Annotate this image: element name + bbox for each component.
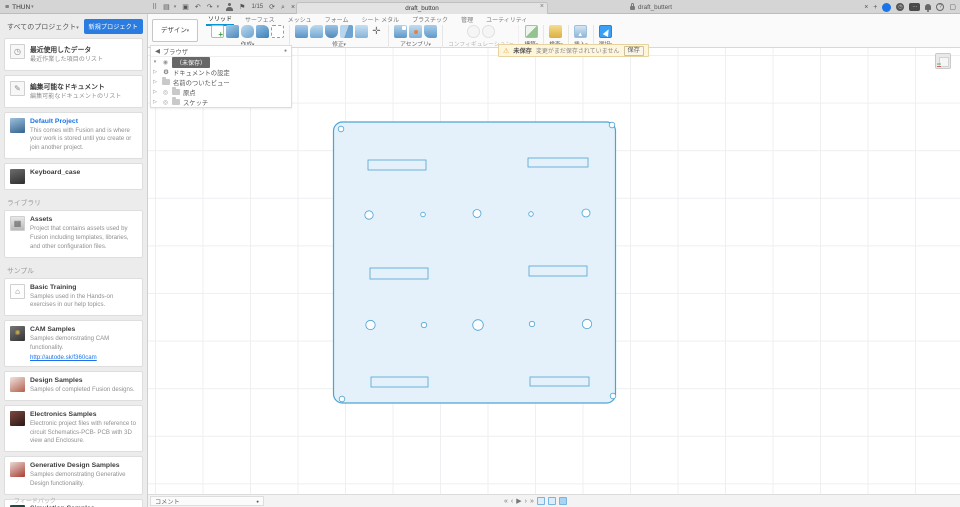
- mount-hole[interactable]: [582, 319, 591, 328]
- project-title: Generative Design Samples: [30, 462, 137, 469]
- timeline-feature-sketch-chip-icon[interactable]: [537, 497, 545, 505]
- sketch-profile[interactable]: [334, 122, 616, 403]
- status-dot-icon: ●: [256, 499, 259, 504]
- browser-node-3[interactable]: ▷◎スケッチ: [151, 97, 291, 107]
- browser-palette: ◀ ブラウザ ● ▾ ◉ （未保存） ▷⚙ドキュメントの設定▷名前のついたビュー…: [150, 45, 292, 108]
- project-thumbnail: [10, 118, 25, 133]
- expand-arrow-icon[interactable]: ▷: [151, 99, 159, 105]
- mount-hole[interactable]: [365, 211, 373, 219]
- mount-hole[interactable]: [473, 210, 481, 218]
- refresh-icon[interactable]: ⟳: [269, 4, 275, 11]
- chevron-down-icon: ▾: [76, 25, 79, 31]
- project-description: Electronic project files with reference …: [30, 420, 137, 446]
- project-card[interactable]: Default ProjectThis comes with Fusion an…: [4, 112, 143, 159]
- timeline-feature-sketch-chip-hot-icon[interactable]: [559, 497, 567, 505]
- skip-start-icon[interactable]: «: [504, 498, 508, 505]
- project-card[interactable]: 最近使用したデータ最近作業した項目のリスト: [4, 38, 143, 71]
- lock-icon: [630, 6, 635, 10]
- project-description: 最近作業した項目のリスト: [30, 56, 103, 65]
- modeling-canvas[interactable]: [148, 48, 960, 494]
- project-description: This comes with Fusion and is where your…: [30, 127, 137, 153]
- form-icon[interactable]: [241, 25, 254, 38]
- project-description: Samples used in the Hands-on exercises i…: [30, 293, 137, 311]
- sketch-plate[interactable]: [148, 48, 960, 494]
- mount-hole[interactable]: [529, 321, 534, 326]
- project-card[interactable]: Electronics SamplesElectronic project fi…: [4, 405, 143, 452]
- new-project-button[interactable]: 新規プロジェクト: [84, 19, 144, 34]
- unsaved-badge: 未保存: [513, 46, 532, 55]
- document-tab[interactable]: draft_button ×: [296, 2, 548, 14]
- view-cube[interactable]: [935, 53, 951, 69]
- ribbon-tab-3[interactable]: フォーム: [323, 14, 351, 25]
- extrude-icon[interactable]: [226, 25, 239, 38]
- project-title: Basic Training: [30, 284, 137, 291]
- window-icon[interactable]: ▢: [949, 4, 956, 11]
- expand-arrow-icon[interactable]: ▷: [151, 89, 159, 95]
- expand-arrow-icon[interactable]: ▾: [151, 59, 159, 65]
- skip-end-icon[interactable]: »: [530, 498, 534, 505]
- mount-hole[interactable]: [366, 320, 375, 329]
- construct-plane-icon[interactable]: [525, 25, 538, 38]
- recent-icon: [10, 44, 25, 59]
- warning-icon: ⚠: [503, 47, 509, 55]
- project-title: Electronics Samples: [30, 411, 137, 418]
- mount-hole[interactable]: [582, 209, 590, 217]
- folder-icon: [172, 99, 180, 105]
- help-icon[interactable]: ?: [936, 3, 944, 11]
- revolve-icon[interactable]: [256, 25, 269, 38]
- project-title: 最近使用したデータ: [30, 44, 103, 54]
- projects-filter-dropdown[interactable]: すべてのプロジェクト ▾: [7, 22, 79, 32]
- folder-icon: [162, 79, 170, 85]
- project-description: Samples demonstrating Generative Design …: [30, 471, 137, 489]
- ribbon-tab-1[interactable]: サーフェス: [243, 14, 277, 25]
- application-bar: ≡ THUN ▾ ⠿▤▾▣↶↷▾⚑1/15⟳⌕× draft_button × …: [0, 0, 960, 14]
- project-card[interactable]: Design SamplesSamples of completed Fusio…: [4, 371, 143, 401]
- project-title: CAM Samples: [30, 326, 137, 333]
- chevron-down-icon: ▾: [31, 4, 34, 10]
- hamburger-icon[interactable]: ≡: [5, 4, 9, 11]
- unsaved-warning-bar: ⚠ 未保存 変更がまだ保存されていません 保存: [498, 44, 649, 57]
- close-icon[interactable]: ×: [291, 4, 295, 11]
- section-label: ライブラリ: [7, 197, 147, 207]
- grid-icon[interactable]: ⠿: [152, 4, 157, 11]
- corner-hole[interactable]: [338, 126, 344, 132]
- ribbon-tab-5[interactable]: プラスチック: [410, 14, 450, 25]
- chevron-down-icon: ▾: [174, 4, 177, 10]
- bell-icon[interactable]: [925, 4, 931, 10]
- collapse-icon[interactable]: ◀: [155, 48, 160, 55]
- file-icon[interactable]: ▤: [163, 4, 170, 11]
- warning-message: 変更がまだ保存されていません: [536, 46, 620, 55]
- section-label: サンプル: [7, 265, 147, 275]
- window-title: draft_buttert: [630, 0, 672, 14]
- project-card[interactable]: Keyboard_case: [4, 163, 143, 190]
- edit-icon: [10, 81, 25, 96]
- project-thumbnail: [10, 462, 25, 477]
- browser-node-2[interactable]: ▷◎原点: [151, 87, 291, 97]
- flag-icon[interactable]: ⚑: [239, 4, 245, 11]
- comments-label: コメント: [155, 497, 180, 506]
- apps-icon[interactable]: ⋯: [909, 3, 920, 11]
- team-name[interactable]: THUN: [12, 4, 30, 11]
- user-icon[interactable]: [225, 3, 233, 11]
- data-panel: すべてのプロジェクト ▾ 新規プロジェクト 最近使用したデータ最近作業した項目の…: [0, 14, 148, 507]
- project-thumbnail: [10, 169, 25, 184]
- workspace-switcher[interactable]: デザイン ▾: [152, 19, 198, 42]
- browser-title: ブラウザ: [163, 47, 188, 56]
- gear-icon: ⚙: [162, 68, 170, 76]
- project-link[interactable]: http://autode.sk/f360cam: [30, 354, 137, 361]
- project-description: Samples demonstrating CAM functionality.: [30, 335, 137, 353]
- select-cursor-icon[interactable]: [599, 25, 612, 38]
- toolbar-group-2: アセンブリ ▾: [389, 25, 443, 48]
- mount-hole[interactable]: [421, 212, 426, 217]
- browser-node-label: 原点: [183, 88, 196, 97]
- joint-icon[interactable]: [409, 25, 422, 38]
- root-component-label[interactable]: （未保存）: [172, 57, 210, 68]
- shell-icon[interactable]: [325, 25, 338, 38]
- insert-image-icon[interactable]: [574, 25, 587, 38]
- chevron-down-icon: ▾: [217, 4, 220, 10]
- close-tab-icon[interactable]: ×: [540, 3, 544, 10]
- ribbon-toolbar: デザイン ▾ ソリッドサーフェスメッシュフォームシート メタルプラスチック管理ユ…: [148, 14, 960, 48]
- search-icon[interactable]: ⌕: [281, 4, 285, 11]
- eye-icon[interactable]: ◉: [162, 59, 169, 66]
- step-back-icon[interactable]: ‹: [511, 498, 513, 505]
- ribbon-tab-4[interactable]: シート メタル: [360, 14, 402, 25]
- project-card[interactable]: Generative Design SamplesSamples demonst…: [4, 456, 143, 495]
- project-card[interactable]: AssetsProject that contains assets used …: [4, 210, 143, 257]
- corner-hole[interactable]: [609, 122, 615, 128]
- project-title: 編集可能なドキュメント: [30, 81, 121, 91]
- project-thumbnail: [10, 326, 25, 341]
- save-icon[interactable]: ▣: [182, 4, 189, 11]
- corner-hole[interactable]: [610, 393, 616, 399]
- close-icon[interactable]: ×: [864, 4, 868, 11]
- project-card[interactable]: CAM SamplesSamples demonstrating CAM fun…: [4, 320, 143, 367]
- project-description: Project that contains assets used by Fus…: [30, 225, 137, 251]
- comments-palette[interactable]: コメント ●: [150, 496, 264, 506]
- toolbar-group-1: 修正 ▾: [290, 25, 389, 48]
- project-description: Samples of completed Fusion designs.: [30, 386, 135, 395]
- options-dot-icon[interactable]: ●: [284, 48, 287, 54]
- sketch-create-icon[interactable]: [211, 25, 224, 38]
- project-title: Design Samples: [30, 377, 135, 384]
- ribbon-tab-6[interactable]: 管理: [459, 14, 475, 25]
- play-icon[interactable]: ▶: [516, 498, 521, 505]
- mount-hole[interactable]: [473, 320, 484, 331]
- toolbar-group-label[interactable]: 修正 ▾: [295, 39, 383, 48]
- window-title-text: draft_buttert: [638, 4, 672, 11]
- browser-node-label: スケッチ: [183, 98, 208, 107]
- browser-node-label: 名前のついたビュー: [173, 78, 230, 87]
- user-avatar[interactable]: [882, 3, 891, 12]
- toolbar-group-label[interactable]: アセンブリ ▾: [394, 39, 437, 48]
- add-icon[interactable]: +: [873, 4, 877, 11]
- expand-arrow-icon[interactable]: ▷: [151, 79, 159, 85]
- construction-icon[interactable]: [271, 25, 284, 38]
- new-component-icon[interactable]: [394, 25, 407, 38]
- project-thumbnail: [10, 284, 25, 299]
- eye-icon[interactable]: ◎: [162, 89, 169, 96]
- browser-node-0[interactable]: ▷⚙ドキュメントの設定: [151, 67, 291, 77]
- fusion-360-window: ≡ THUN ▾ ⠿▤▾▣↶↷▾⚑1/15⟳⌕× draft_button × …: [0, 0, 960, 507]
- timeline-feature-sketch-chip-icon[interactable]: [548, 497, 556, 505]
- chevron-down-icon: ▾: [187, 28, 190, 34]
- mount-hole[interactable]: [421, 322, 426, 327]
- rigid-group-icon[interactable]: [424, 25, 437, 38]
- offset-icon[interactable]: [355, 25, 368, 38]
- measure-icon[interactable]: [549, 25, 562, 38]
- timeline-bar: コメント ● «‹▶›»: [148, 494, 960, 507]
- data-panel-footer: フィードバック: [14, 496, 56, 505]
- browser-root-row[interactable]: ▾ ◉ （未保存）: [151, 57, 291, 67]
- project-thumbnail: [10, 216, 25, 231]
- undo-icon[interactable]: ↶: [195, 4, 201, 11]
- document-tab-label: draft_button: [405, 5, 439, 12]
- project-title: Assets: [30, 216, 137, 223]
- config-b-icon[interactable]: [482, 25, 495, 38]
- project-title: Default Project: [30, 118, 137, 125]
- project-thumbnail: [10, 411, 25, 426]
- press-pull-icon[interactable]: [295, 25, 308, 38]
- clock-icon[interactable]: ◷: [896, 3, 904, 11]
- save-button[interactable]: 保存: [624, 46, 644, 56]
- corner-hole[interactable]: [339, 396, 345, 402]
- redo-icon[interactable]: ↷: [207, 4, 213, 11]
- config-a-icon[interactable]: [467, 25, 480, 38]
- project-card[interactable]: Basic TrainingSamples used in the Hands-…: [4, 278, 143, 317]
- ribbon-tab-2[interactable]: メッシュ: [286, 14, 314, 25]
- browser-node-1[interactable]: ▷名前のついたビュー: [151, 77, 291, 87]
- project-title: Keyboard_case: [30, 169, 80, 176]
- ribbon-tab-7[interactable]: ユーティリティ: [484, 14, 529, 25]
- project-card[interactable]: 編集可能なドキュメント編集可能なドキュメントのリスト: [4, 75, 143, 108]
- move-icon[interactable]: [370, 25, 383, 38]
- fillet-icon[interactable]: [310, 25, 323, 38]
- folder-icon: [172, 89, 180, 95]
- browser-node-label: ドキュメントの設定: [173, 68, 230, 77]
- flag-count: 1/15: [251, 4, 263, 10]
- expand-arrow-icon[interactable]: ▷: [151, 69, 159, 75]
- project-description: 編集可能なドキュメントのリスト: [30, 93, 121, 102]
- mount-hole[interactable]: [529, 212, 534, 217]
- step-forward-icon[interactable]: ›: [525, 498, 527, 505]
- combine-icon[interactable]: [340, 25, 353, 38]
- eye-icon[interactable]: ◎: [162, 99, 169, 106]
- project-thumbnail: [10, 377, 25, 392]
